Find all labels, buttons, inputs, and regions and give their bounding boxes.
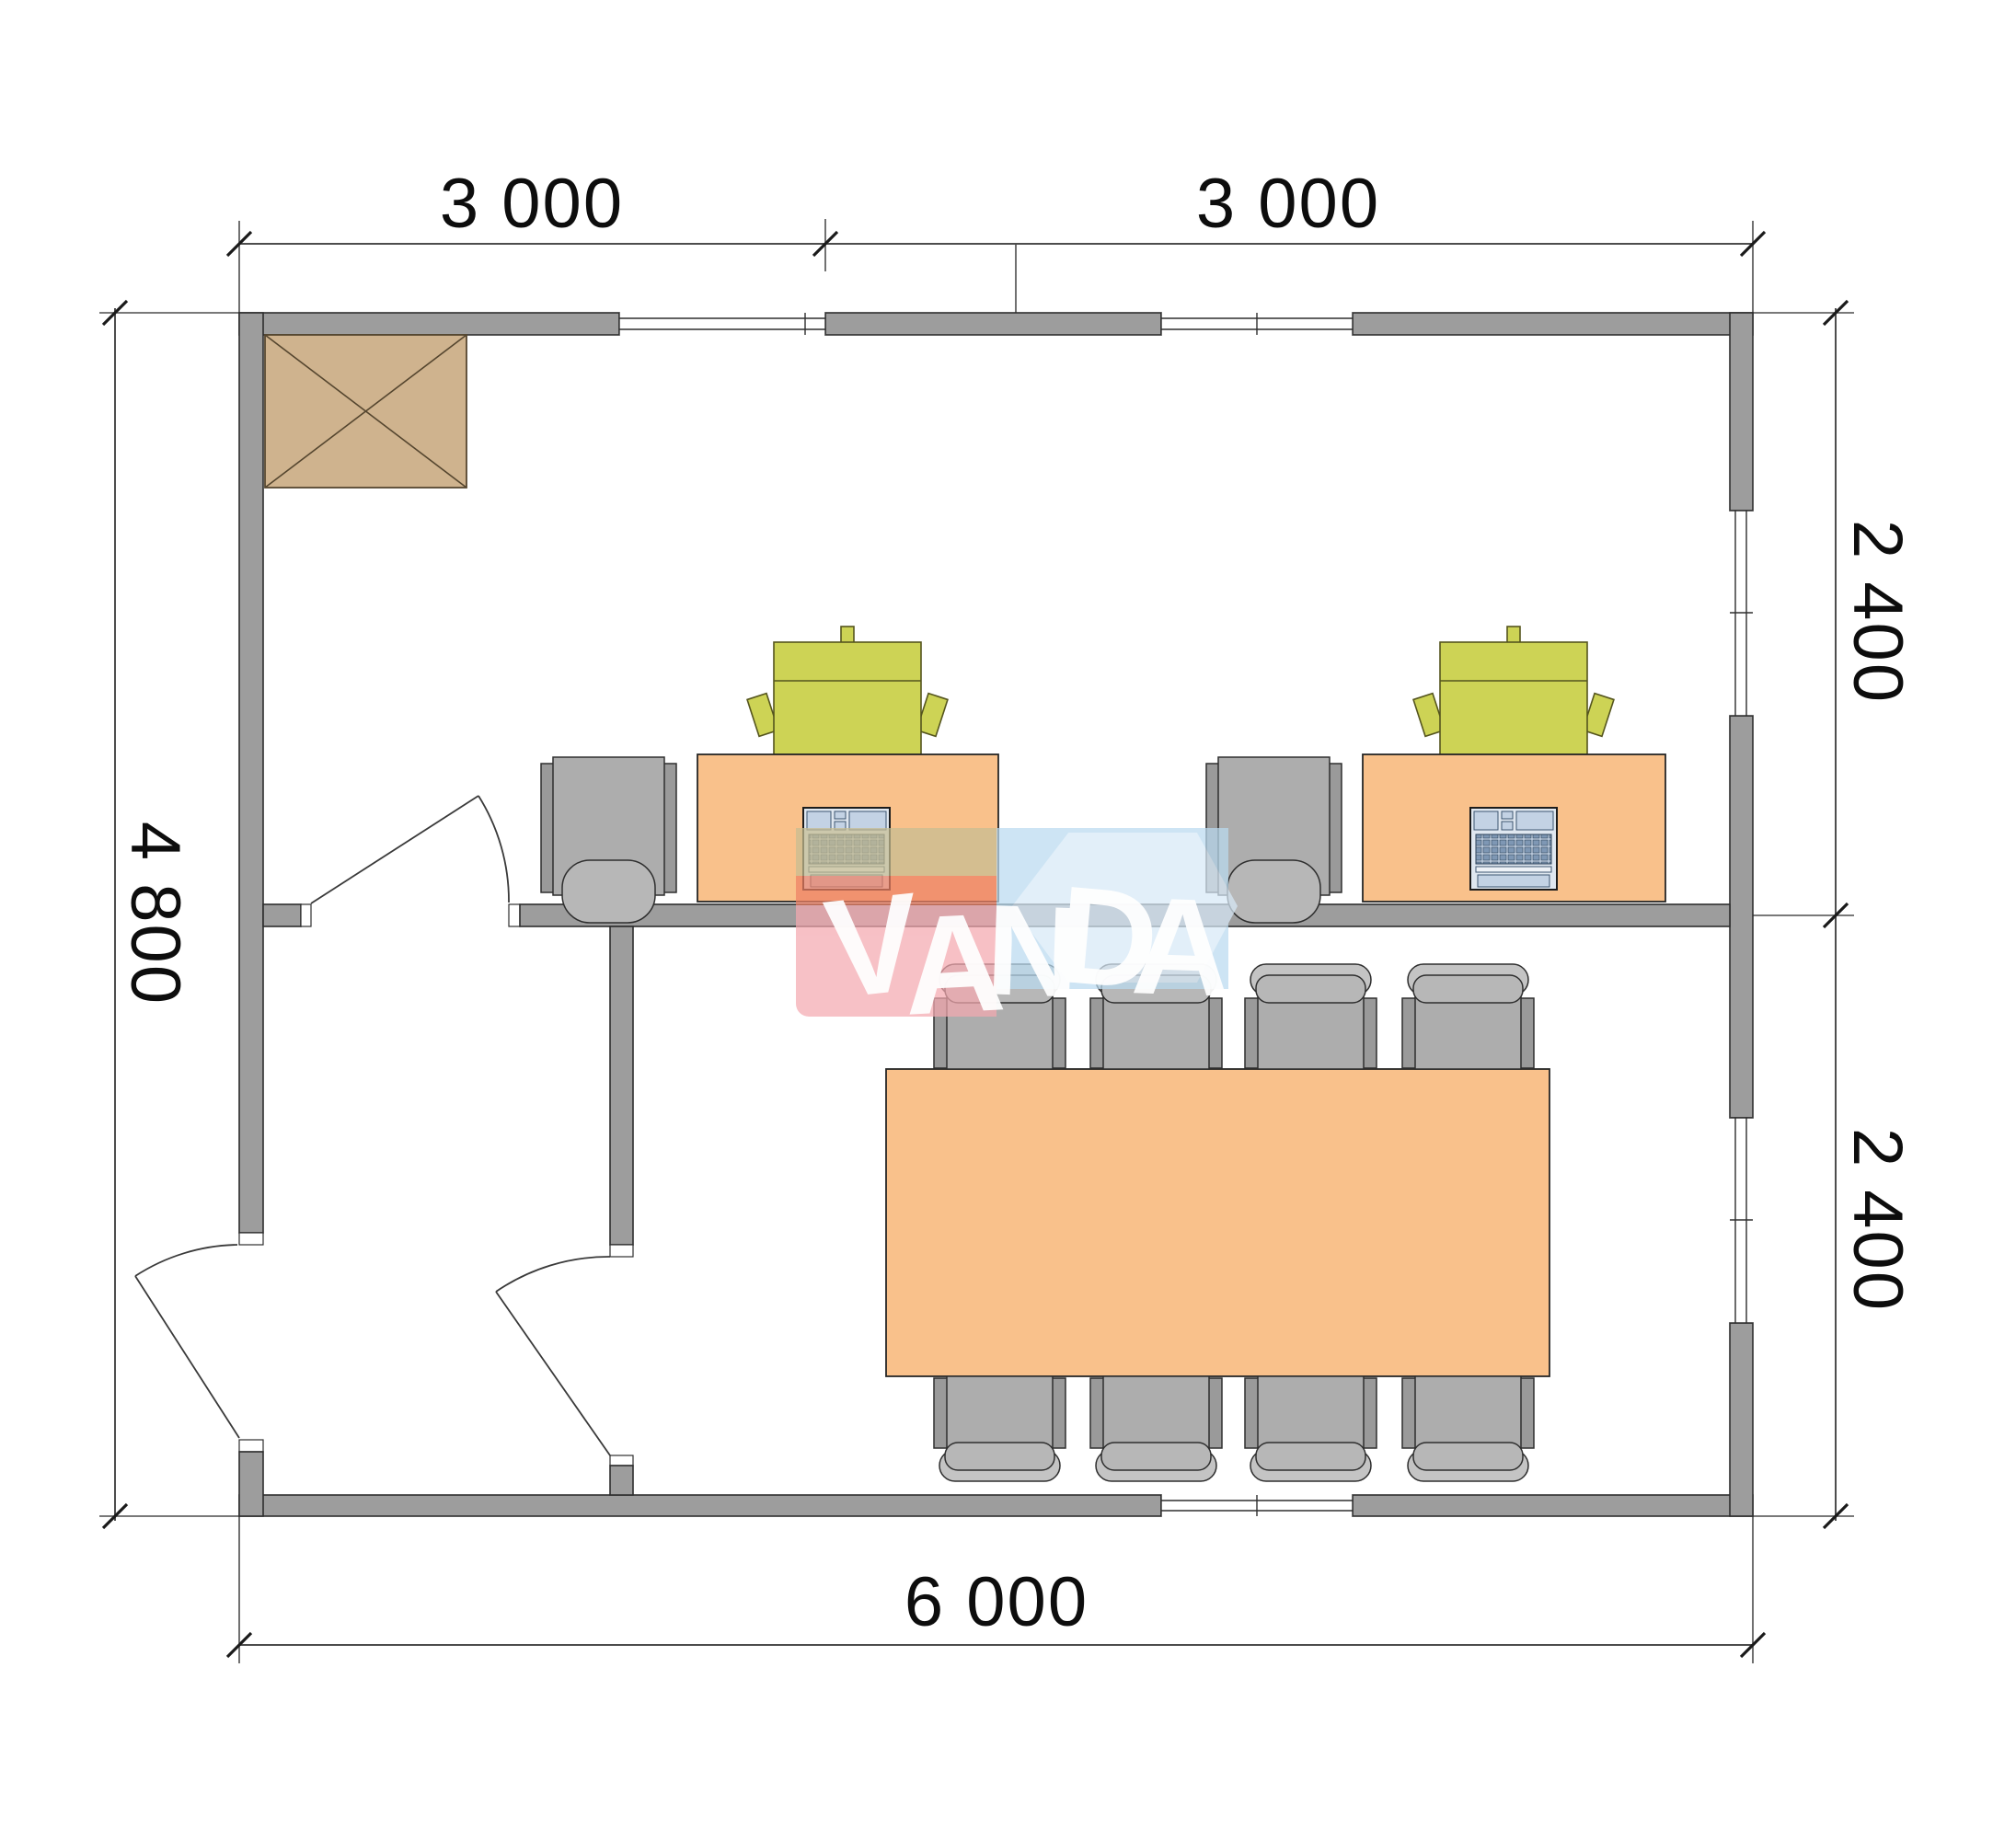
window-top-1 bbox=[619, 313, 825, 335]
executive-chair-1 bbox=[747, 627, 948, 754]
dim-label-right-lower: 2 400 bbox=[1842, 1128, 1912, 1312]
cabinet-crossed-box bbox=[265, 335, 467, 488]
wall-partition-main bbox=[520, 904, 1730, 926]
executive-chair-2 bbox=[1413, 627, 1614, 754]
wall-right-segment-2 bbox=[1730, 716, 1753, 1118]
hall-door bbox=[496, 1257, 610, 1455]
chair-headrest bbox=[841, 627, 854, 643]
laptop-1 bbox=[803, 808, 890, 890]
door-threshold bbox=[610, 1245, 633, 1257]
wall-hall-segment-2 bbox=[610, 1466, 633, 1495]
wall-left-segment-2 bbox=[239, 1452, 263, 1516]
window-right-lower bbox=[1730, 1118, 1753, 1323]
chair-body bbox=[1440, 642, 1587, 754]
wall-top-segment-1 bbox=[239, 313, 619, 335]
wall-bottom-segment-2 bbox=[1353, 1495, 1753, 1516]
wall-top-segment-3 bbox=[1353, 313, 1753, 335]
meeting-table bbox=[886, 1069, 1549, 1376]
chair-headrest bbox=[1507, 627, 1520, 643]
meeting-chair-bottom-3 bbox=[1245, 1376, 1377, 1481]
wall-right-segment-1 bbox=[1730, 313, 1753, 511]
office-door bbox=[311, 796, 509, 903]
dim-label-left: 4 800 bbox=[120, 822, 190, 1006]
meeting-chair-top-1 bbox=[934, 964, 1066, 1069]
task-chair-1 bbox=[541, 757, 676, 923]
wall-top-segment-2 bbox=[825, 313, 1161, 335]
wall-bottom-segment-1 bbox=[239, 1495, 1161, 1516]
meeting-chair-top-2 bbox=[1090, 964, 1222, 1069]
doors bbox=[135, 796, 610, 1455]
meeting-chair-bottom-1 bbox=[934, 1376, 1066, 1481]
door-threshold bbox=[509, 904, 520, 926]
entrance-door bbox=[135, 1245, 239, 1438]
meeting-chair-top-3 bbox=[1245, 964, 1377, 1069]
window-top-2 bbox=[1161, 313, 1353, 335]
window-bottom bbox=[1161, 1495, 1353, 1516]
wall-hall-segment-1 bbox=[610, 926, 633, 1245]
floor-plan-canvas: 3 000 3 000 2 400 2 400 4 800 6 000 V A … bbox=[0, 0, 2016, 1840]
dim-label-top-right: 3 000 bbox=[1196, 169, 1380, 239]
dim-label-bottom: 6 000 bbox=[904, 1568, 1089, 1638]
task-chair-2 bbox=[1206, 757, 1342, 923]
dim-label-top-left: 3 000 bbox=[440, 169, 624, 239]
door-threshold bbox=[610, 1455, 633, 1466]
chair-body bbox=[774, 642, 921, 754]
door-threshold bbox=[239, 1440, 263, 1452]
meeting-chair-bottom-4 bbox=[1402, 1376, 1534, 1481]
meeting-chair-bottom-2 bbox=[1090, 1376, 1222, 1481]
door-threshold bbox=[239, 1233, 263, 1245]
wall-partition-stub-left bbox=[263, 904, 301, 926]
meeting-chair-top-4 bbox=[1402, 964, 1534, 1069]
dim-label-right-upper: 2 400 bbox=[1842, 520, 1912, 704]
door-threshold bbox=[301, 904, 311, 926]
wall-right-segment-3 bbox=[1730, 1323, 1753, 1516]
laptop-2 bbox=[1470, 808, 1557, 890]
wall-left-segment-1 bbox=[239, 313, 263, 1233]
window-right-upper bbox=[1730, 511, 1753, 716]
